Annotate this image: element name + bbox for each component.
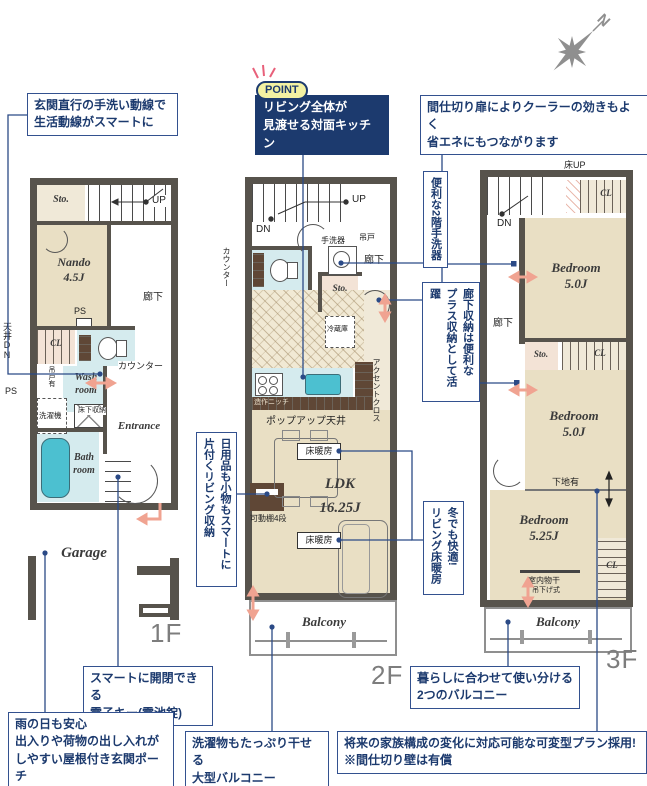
floor2-niche-label: 造作ニッチ	[254, 399, 289, 407]
callout-entry-flow: 玄関直行の手洗い動線で 生活動線がスマートに	[27, 93, 178, 136]
callout-hallway-storage: 廊下収納は便利な プラス収納として活躍	[422, 282, 480, 402]
floor2-dn-label: DN	[256, 224, 270, 236]
floor2-balcony-label: Balcony	[292, 614, 356, 630]
floor3-closet-mid-label: CL	[588, 348, 612, 359]
floor2-toilet-counter	[253, 253, 264, 287]
floor2-movable-shelf-label: 可動棚4段	[250, 514, 286, 524]
floor1-hallway-label: 廊下	[143, 292, 163, 304]
balcony-post	[286, 632, 290, 648]
callout-point-kitchen: リビング全体が 見渡せる対面キッチン	[255, 95, 389, 155]
floor1-hanging-door-label: 吊戸有	[48, 366, 55, 400]
floor2-accent-cloth-label: アクセントクロス	[372, 358, 380, 450]
balcony-post	[520, 630, 524, 644]
callout-living-storage: 日用品も小物もスマートに 片付くリビング収納	[196, 432, 237, 587]
compass-north-label: N	[594, 11, 614, 31]
floor1-wall	[37, 326, 135, 330]
floor1-counter-label: カウンター	[118, 361, 163, 372]
callout-roofed-porch: 雨の日も安心 出入りや荷物の出し入れが しやすい屋根付き玄関ポーチ	[8, 712, 174, 786]
dining-chair	[310, 430, 328, 441]
floor2-wall	[308, 250, 312, 290]
compass-icon	[554, 31, 594, 71]
floor1-wash-label: Wash room	[66, 372, 106, 397]
floor1-entrance-label: Entrance	[110, 420, 168, 434]
toilet-tank	[287, 262, 298, 279]
floor2-counter-label: カウンター	[222, 247, 230, 305]
floor1-wall	[37, 221, 171, 225]
stove-burner	[269, 376, 278, 385]
stove-burner	[258, 386, 267, 395]
floor1-wall	[107, 225, 111, 330]
floor2-stairs	[252, 184, 348, 222]
garage-wall	[137, 566, 171, 575]
callout-two-balconies: 暮らしに合わせて使い分ける 2つのバルコニー	[410, 666, 580, 709]
floor3-bedroom2-label: Bedroom 5.0J	[538, 408, 610, 441]
floor3-base-wall-label: 下地有	[552, 477, 579, 488]
callout-flexible-plan: 将来の家族構成の変化に対応可能な可変型プラン採用! ※間仕切り壁は有償	[337, 731, 647, 774]
floor2-storage-label: Sto.	[327, 284, 353, 296]
floor2-handwash-label: 手洗器	[321, 236, 345, 246]
callout-handwash-2f: 便利な2階手洗器	[423, 171, 448, 268]
floor1-underfloor-label: 床下収納	[78, 407, 106, 415]
floorplan-sheet: 玄関直行の手洗い動線で 生活動線がスマートに POINT リビング全体が 見渡せ…	[0, 0, 647, 786]
floor3-wall	[525, 338, 626, 342]
floor3-bedroom3-label: Bedroom 5.25J	[504, 512, 584, 545]
balcony-post	[352, 632, 356, 648]
floor1-ceiling-dn-label: 天井DN	[2, 322, 11, 370]
stove-burner	[269, 386, 278, 395]
floor2-fridge-label: 冷蔵庫	[327, 326, 348, 334]
floor3-indoor-drying-label: 室内物干	[528, 576, 560, 586]
floor-heating-label-2: 床暖房	[297, 532, 341, 549]
floor1-toilet-counter	[79, 335, 91, 361]
floor3-closet-top-label: CL	[594, 188, 618, 199]
floor3-number: 3F	[606, 644, 638, 675]
floor1-wall	[37, 428, 103, 432]
callout-large-balcony: 洗濯物もたっぷり干せる 大型バルコニー	[185, 731, 329, 786]
toilet-bowl	[98, 337, 118, 360]
balcony-rail-line	[490, 638, 622, 640]
dining-chair	[282, 496, 300, 507]
door-arc	[112, 458, 158, 504]
balcony-rail-line	[255, 640, 387, 642]
kitchen-sink	[305, 374, 341, 395]
floor3-hallway-label: 廊下	[493, 318, 513, 330]
floor3-hanging-type-label: 吊下げ式	[532, 587, 560, 595]
floor2-hanging-cupboard-label: 吊戸	[359, 233, 375, 243]
stove-burner	[258, 376, 267, 385]
floor1-up-label: UP	[152, 195, 166, 207]
floor1-washer-label: 洗濯機	[39, 411, 62, 420]
floor1-nando-label: Nando 4.5J	[44, 255, 104, 285]
garage-slot	[143, 608, 168, 613]
floor1-number: 1F	[150, 618, 182, 649]
floor2-hallway-label: 廊下	[364, 255, 384, 267]
floor1-ps-label: PS	[74, 306, 86, 317]
dining-chair	[282, 430, 300, 441]
floor3-closet-br-label: CL	[600, 560, 624, 571]
shelf-slot	[256, 489, 278, 495]
floor3-stairs	[487, 177, 553, 215]
floor1-closet-label: CL	[44, 338, 68, 349]
floor3-storage-label: Sto.	[529, 349, 553, 360]
floor3-floor-up-area	[566, 180, 580, 213]
floor2-popup-ceiling-label: ポップアップ天井	[266, 416, 346, 428]
point-badge: POINT	[256, 81, 308, 100]
door-arc	[493, 455, 525, 487]
callout-partition-door: 間仕切り扉によりクーラーの効きもよく 省エネにもつながります	[420, 95, 647, 155]
balcony-post	[588, 630, 592, 644]
toilet-tank	[116, 340, 127, 357]
floor2-number: 2F	[371, 660, 403, 691]
floor1-ps2-label: PS	[5, 386, 17, 397]
door-arc	[360, 290, 390, 320]
floor3-floor-up-label: 床UP	[564, 160, 586, 171]
floor2-ldk-label: LDK 16.25J	[300, 472, 380, 520]
handwash-basin-bowl	[333, 251, 350, 268]
door-arc	[42, 227, 68, 253]
drying-bar	[520, 570, 580, 573]
floor2-wall	[318, 272, 322, 312]
floor1-garage-label: Garage	[52, 544, 116, 563]
kitchen-counter-side	[355, 362, 373, 397]
floor1-bath-label: Bath room	[66, 452, 102, 477]
floor3-dn-label: DN	[497, 218, 511, 230]
floor3-balcony-label: Balcony	[526, 614, 590, 630]
floor1-storage-label: Sto.	[44, 194, 78, 207]
sofa-seat	[342, 524, 370, 594]
floor3-wall	[519, 218, 525, 344]
partition-line	[525, 489, 626, 491]
floor2-up-label: UP	[352, 194, 366, 206]
garage-wall	[28, 556, 36, 620]
floor-heating-label-1: 床暖房	[297, 443, 341, 460]
callout-floor-heating: 冬でも快適! リビング床暖房	[423, 501, 464, 595]
floor3-bedroom1-label: Bedroom 5.0J	[540, 260, 612, 293]
